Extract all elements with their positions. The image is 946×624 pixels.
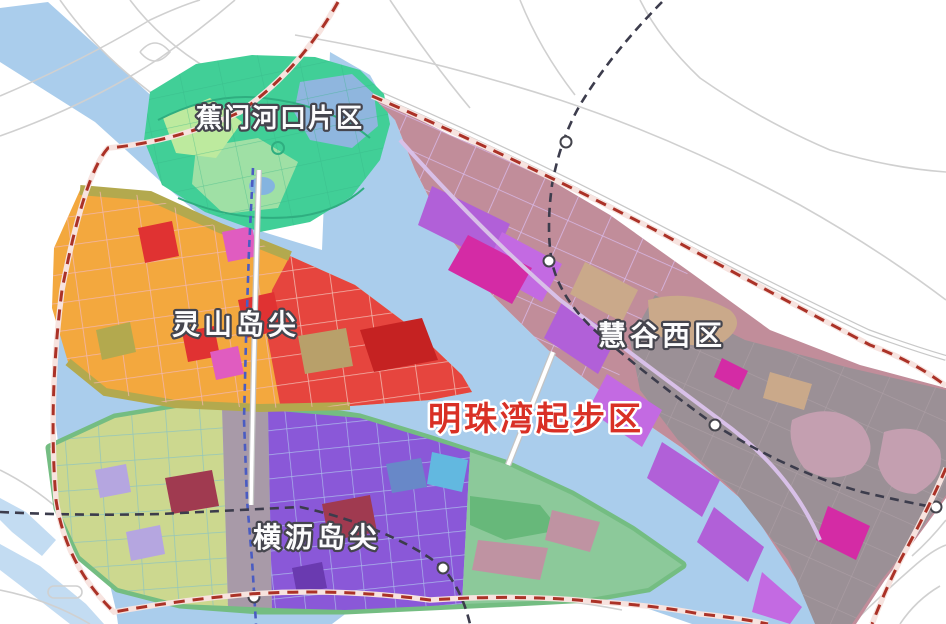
city-block <box>95 464 131 498</box>
label-lingshan: 灵山岛尖 <box>172 308 300 340</box>
planning-map: 蕉门河口片区 灵山岛尖 慧谷西区 横沥岛尖 明珠湾起步区 <box>0 0 946 624</box>
station-marker <box>710 420 721 431</box>
label-mingzhuwan: 明珠湾起步区 <box>428 400 644 437</box>
station-marker <box>544 256 555 267</box>
station-marker <box>561 137 572 148</box>
city-block <box>386 458 427 493</box>
label-hengli: 横沥岛尖 <box>253 521 381 553</box>
label-huigu: 慧谷西区 <box>598 320 726 351</box>
city-block <box>298 328 353 374</box>
city-block <box>210 346 244 380</box>
label-jiaomen: 蕉门河口片区 <box>196 103 364 133</box>
city-block <box>222 226 258 262</box>
city-block <box>138 221 179 263</box>
station-marker <box>438 563 449 574</box>
map-canvas: 蕉门河口片区 灵山岛尖 慧谷西区 横沥岛尖 明珠湾起步区 <box>0 0 946 624</box>
